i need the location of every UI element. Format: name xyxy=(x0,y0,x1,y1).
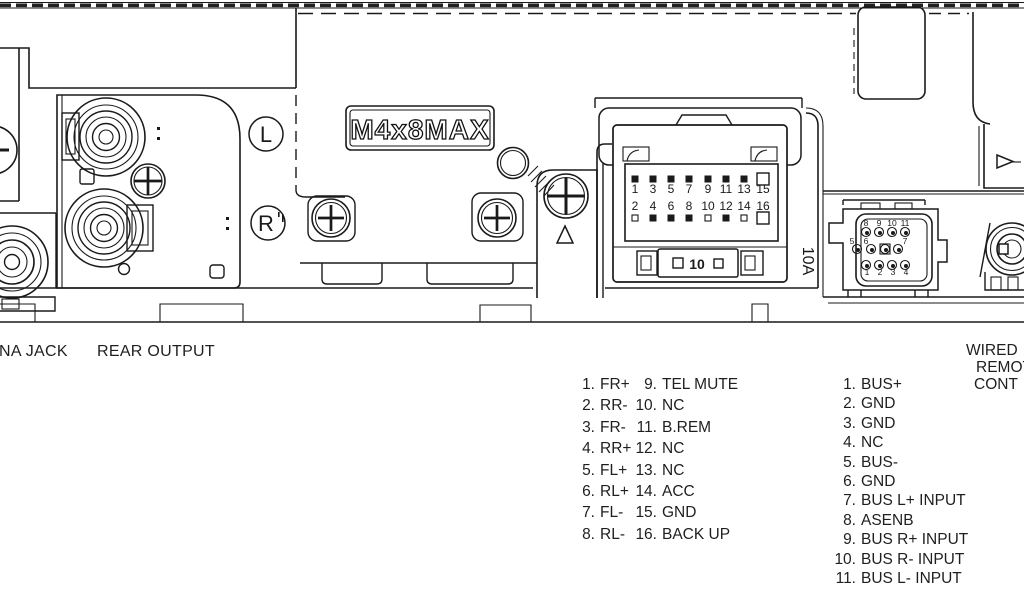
pin-label: RR+ xyxy=(600,440,631,458)
pin-list-row: 5.FL+ xyxy=(577,462,631,483)
triangle-marker xyxy=(557,226,573,243)
pin-number: 5 xyxy=(850,236,855,246)
pin-list-row: 14.ACC xyxy=(630,483,738,504)
pin-number: 3 xyxy=(891,267,896,277)
channel-label-r: R xyxy=(258,211,274,236)
pin-label: FR- xyxy=(600,419,626,437)
antenna-jack-right xyxy=(980,223,1024,290)
pin-list-row: 11.BUS L- INPUT xyxy=(832,570,968,589)
remote-connector: 8910115671234 xyxy=(829,200,947,297)
pin-number: 16 xyxy=(756,199,770,213)
pin-label: FL+ xyxy=(600,462,627,480)
pin-number: 9. xyxy=(630,376,657,394)
pin-list-row: 1.FR+ xyxy=(577,376,631,397)
pin-number: 7 xyxy=(903,236,908,246)
remote-pin-dot xyxy=(856,248,860,252)
panel-hole xyxy=(119,264,130,275)
pin-number: 1 xyxy=(865,267,870,277)
pin-label: GND xyxy=(861,473,895,491)
remote-pin-dot xyxy=(884,248,888,252)
pin-number: 2 xyxy=(878,267,883,277)
screw-size-plate: M4x8MAX xyxy=(346,106,494,150)
rca-jack-bottom xyxy=(65,189,153,267)
pin-number: 13. xyxy=(630,462,657,480)
rca-jack-top xyxy=(62,98,145,184)
pinout-bus-list: 1.BUS+2.GND3.GND4.NC5.BUS-6.GND7.BUS L+ … xyxy=(832,376,968,589)
pin-number: 10 xyxy=(887,218,897,228)
pin-label: B.REM xyxy=(662,419,711,437)
channel-badge-left: L xyxy=(249,117,283,151)
screw-panel xyxy=(131,164,165,198)
pin-number: 10. xyxy=(832,551,856,569)
pin-label: RL- xyxy=(600,526,625,544)
pin-number: 10. xyxy=(630,397,657,415)
caption-wired-remote: WIREDREMOTCONT xyxy=(966,342,1024,393)
remote-pin-dot xyxy=(865,231,869,235)
channel-badge-right: R xyxy=(251,206,285,240)
pinout-main-right-column: 9.TEL MUTE10.NC11.B.REM12.NC13.NC14.ACC1… xyxy=(630,376,738,547)
pin-list-row: 5.BUS- xyxy=(832,454,968,473)
pin-list-row: 9.BUS R+ INPUT xyxy=(832,531,968,550)
pin-list-row: 11.B.REM xyxy=(630,419,738,440)
pin-list-row: 2.GND xyxy=(832,395,968,414)
colon-marks xyxy=(157,127,229,230)
pin-number: 8 xyxy=(864,218,869,228)
fuse-rating-label: 10A xyxy=(799,247,816,276)
pin-list-row: 6.GND xyxy=(832,473,968,492)
pin-number: 5. xyxy=(832,454,856,472)
pin-list-row: 7.BUS L+ INPUT xyxy=(832,492,968,511)
pin-number: 15. xyxy=(630,504,657,522)
pin-list-row: 4.NC xyxy=(832,434,968,453)
pin-label: BUS+ xyxy=(861,376,902,394)
pin-list-row: 10.BUS R- INPUT xyxy=(832,551,968,570)
pin-label: BUS R- INPUT xyxy=(861,551,964,569)
pin-label: BUS R+ INPUT xyxy=(861,531,968,549)
pin-number: 11. xyxy=(832,570,856,588)
pin-number: 1. xyxy=(832,376,856,394)
screw-center-left xyxy=(312,199,350,237)
pin-number: 4 xyxy=(904,267,909,277)
pin-number: 1 xyxy=(632,182,639,196)
pin-number: 16. xyxy=(630,526,657,544)
pin-list-row: 4.RR+ xyxy=(577,440,631,461)
left-edge-connector xyxy=(0,126,17,174)
arrow-marker xyxy=(997,155,1013,168)
pin-number: 15 xyxy=(756,182,770,196)
pin-number: 2. xyxy=(832,395,856,413)
pin-number: 8 xyxy=(686,199,693,213)
pin-list-row: 9.TEL MUTE xyxy=(630,376,738,397)
pin-number: 12. xyxy=(630,440,657,458)
pin-number: 14 xyxy=(737,199,751,213)
pin-label: BUS- xyxy=(861,454,898,472)
pin-list-row: 15.GND xyxy=(630,504,738,525)
pin-list-row: 10.NC xyxy=(630,397,738,418)
pin-number: 6. xyxy=(832,473,856,491)
pin-list-row: 12.NC xyxy=(630,440,738,461)
pin-number: 6 xyxy=(864,236,869,246)
pin-label: BUS L- INPUT xyxy=(861,570,962,588)
pin-list-row: 8.RL- xyxy=(577,526,631,547)
pin-number: 6. xyxy=(577,483,595,501)
pin-label: ACC xyxy=(662,483,695,501)
pin-number: 5. xyxy=(577,462,595,480)
panel-slot xyxy=(210,265,224,278)
pin-list-row: 1.BUS+ xyxy=(832,376,968,395)
pin-number: 7. xyxy=(832,492,856,510)
channel-label-l: L xyxy=(260,122,272,147)
pin-list-row: 8.ASENB xyxy=(832,512,968,531)
chassis-bottom xyxy=(0,288,1024,322)
pin-number: 12 xyxy=(719,199,733,213)
chassis-top-edge xyxy=(0,3,1024,14)
fuse-window-label: 10 xyxy=(689,256,705,272)
pin-number: 7 xyxy=(686,182,693,196)
pin-number: 3. xyxy=(832,415,856,433)
remote-pin-dot xyxy=(904,231,908,235)
pin-list-row: 3.FR- xyxy=(577,419,631,440)
remote-pin-dot xyxy=(897,248,901,252)
antenna-jack-left xyxy=(0,226,55,311)
pin-number: 11. xyxy=(630,419,657,437)
pin-label: GND xyxy=(662,504,696,522)
connector-16pin-even-numbers: 246810121416 xyxy=(632,199,770,213)
pin-number: 4 xyxy=(650,199,657,213)
pin-number: 8. xyxy=(577,526,595,544)
caption-antenna-jack: NA JACK xyxy=(0,343,68,361)
pin-label: RR- xyxy=(600,397,628,415)
pin-list-row: 3.GND xyxy=(832,415,968,434)
pin-number: 6 xyxy=(668,199,675,213)
screw-center-right xyxy=(478,199,516,237)
remote-pin-dot xyxy=(870,248,874,252)
center-panel xyxy=(296,148,537,285)
pin-label: NC xyxy=(662,440,684,458)
pin-number: 1. xyxy=(577,376,595,394)
caption-rear-output: REAR OUTPUT xyxy=(97,343,215,361)
rear-output-panel: L R xyxy=(57,95,285,288)
pin-number: 4. xyxy=(577,440,595,458)
pin-list-row: 6.RL+ xyxy=(577,483,631,504)
pin-label: NC xyxy=(662,397,684,415)
rear-panel-diagram: L R M4x8MAX xyxy=(0,0,1024,340)
pin-number: 5 xyxy=(668,182,675,196)
pin-label: TEL MUTE xyxy=(662,376,738,394)
pin-label: FR+ xyxy=(600,376,630,394)
remote-pin-dot xyxy=(891,231,895,235)
pin-label: BACK UP xyxy=(662,526,730,544)
pin-number: 2. xyxy=(577,397,595,415)
pin-number: 3. xyxy=(577,419,595,437)
pin-label: GND xyxy=(861,415,895,433)
pin-number: 11 xyxy=(901,218,910,228)
round-hole xyxy=(498,148,529,179)
pin-list-row: 7.FL- xyxy=(577,504,631,525)
pin-number: 9 xyxy=(877,218,882,228)
pin-label: RL+ xyxy=(600,483,629,501)
pin-label: ASENB xyxy=(861,512,914,530)
pin-label: GND xyxy=(861,395,895,413)
pin-number: 9 xyxy=(705,182,712,196)
pin-number: 7. xyxy=(577,504,595,522)
plate-label: M4x8MAX xyxy=(350,114,489,145)
caption-wired-remote-line: REMOT xyxy=(976,359,1024,376)
pin-number: 2 xyxy=(632,199,639,213)
connector-16pin: 13579111315 246810121416 10 10A xyxy=(595,98,823,298)
pin-number: 11 xyxy=(720,182,733,196)
pin-list-row: 16.BACK UP xyxy=(630,526,738,547)
pin-number: 14. xyxy=(630,483,657,501)
pin-number: 10 xyxy=(701,199,715,213)
pin-number: 3 xyxy=(650,182,657,196)
pin-number: 4. xyxy=(832,434,856,452)
center-bracket xyxy=(528,143,611,298)
pin-label: FL- xyxy=(600,504,623,522)
pin-list-row: 13.NC xyxy=(630,462,738,483)
pin-number: 8. xyxy=(832,512,856,530)
pin-list-row: 2.RR- xyxy=(577,397,631,418)
pin-label: NC xyxy=(662,462,684,480)
pin-label: NC xyxy=(861,434,883,452)
pin-number: 9. xyxy=(832,531,856,549)
remote-pin-dot xyxy=(878,231,882,235)
pin-number: 13 xyxy=(737,182,751,196)
screw-large xyxy=(544,174,588,218)
caption-wired-remote-line: WIRED xyxy=(966,342,1024,359)
caption-wired-remote-line: CONT xyxy=(974,376,1024,393)
pin-label: BUS L+ INPUT xyxy=(861,492,966,510)
wiring-diagram-page: L R M4x8MAX xyxy=(0,0,1024,600)
pinout-main-left-column: 1.FR+2.RR-3.FR-4.RR+5.FL+6.RL+7.FL-8.RL- xyxy=(577,376,631,547)
